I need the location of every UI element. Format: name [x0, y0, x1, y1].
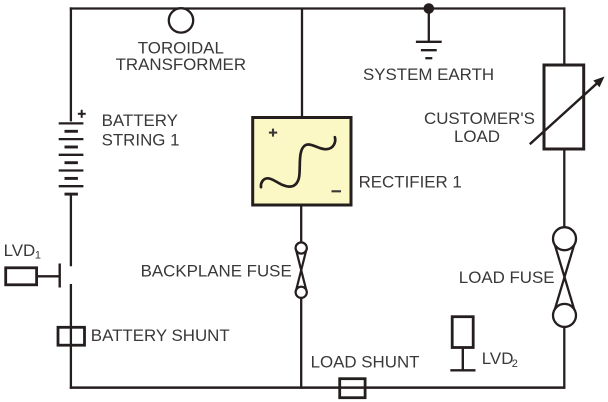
svg-text:BACKPLANE FUSE: BACKPLANE FUSE: [141, 261, 292, 280]
svg-text:LOAD FUSE: LOAD FUSE: [459, 268, 555, 287]
svg-text:CUSTOMER'S: CUSTOMER'S: [424, 109, 535, 128]
svg-text:BATTERY SHUNT: BATTERY SHUNT: [91, 326, 230, 345]
svg-text:LOAD SHUNT: LOAD SHUNT: [311, 353, 420, 372]
svg-text:TRANSFORMER: TRANSFORMER: [116, 55, 246, 74]
svg-text:BATTERY: BATTERY: [102, 111, 178, 130]
svg-text:STRING 1: STRING 1: [102, 130, 180, 149]
svg-text:1: 1: [35, 249, 41, 261]
svg-text:LVD: LVD: [4, 241, 36, 260]
svg-text:LVD: LVD: [482, 349, 514, 368]
svg-text:LOAD: LOAD: [454, 127, 500, 146]
svg-text:2: 2: [512, 358, 518, 370]
svg-text:RECTIFIER 1: RECTIFIER 1: [359, 173, 462, 192]
svg-text:SYSTEM EARTH: SYSTEM EARTH: [363, 65, 494, 84]
